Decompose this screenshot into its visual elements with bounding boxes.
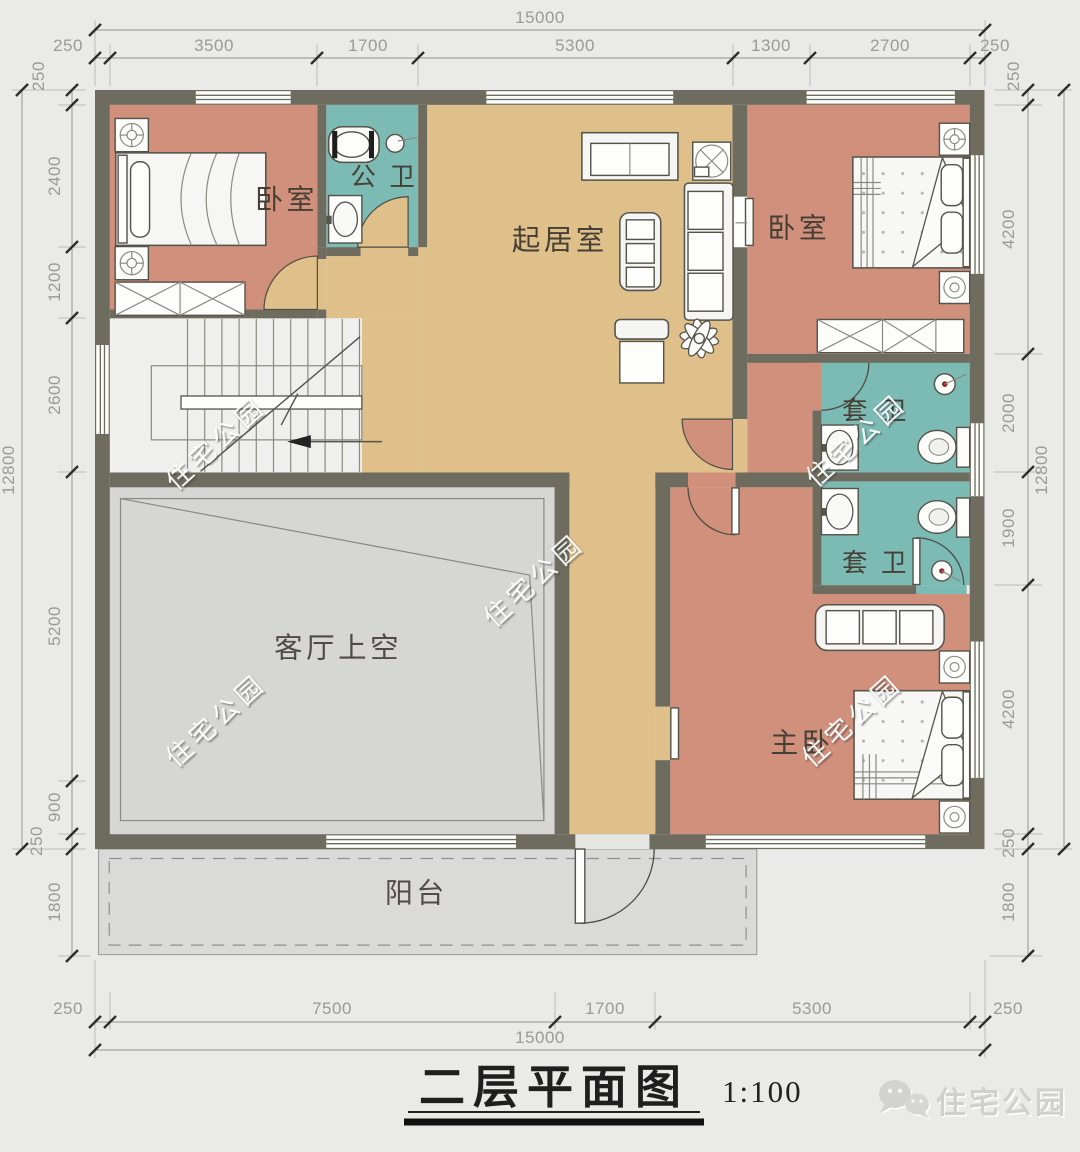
toilet — [957, 498, 970, 537]
faucet — [386, 134, 404, 152]
dim-right-4: 4200 — [999, 689, 1018, 729]
dim-right-1: 4200 — [999, 209, 1018, 249]
staircase — [110, 318, 382, 472]
pillow — [942, 697, 963, 738]
dim-left-6: 250 — [27, 826, 46, 856]
drawing-title: 二层平面图 — [419, 1062, 689, 1113]
label-living: 起居室 — [512, 225, 608, 257]
dim-left-1: 2400 — [45, 156, 64, 196]
dim-bot-3: 5300 — [792, 999, 832, 1018]
dim-left-4: 5200 — [45, 606, 64, 646]
label-void: 客厅上空 — [274, 633, 402, 665]
dim-bottom-total: 15000 — [515, 1028, 565, 1047]
bath-annex — [747, 354, 812, 473]
dim-top-1: 3500 — [194, 36, 234, 55]
dim-left-5: 900 — [45, 792, 64, 822]
floorplan-page: 卧室 公 卫 起居室 卧室 套 卫 套 卫 客厅上空 主卧 阳台 — [0, 0, 1080, 1152]
dim-right-0: 250 — [1004, 61, 1023, 91]
corridor — [569, 472, 655, 834]
dim-top-5: 2700 — [870, 36, 910, 55]
door-bedroom-ne-leaf — [746, 199, 754, 246]
dim-right-5: 250 — [999, 828, 1018, 858]
hall-strip — [362, 318, 418, 472]
dim-left-7: 1800 — [45, 882, 64, 922]
label-public-bath: 公 卫 — [350, 162, 418, 191]
dim-top-6: 250 — [980, 36, 1010, 55]
dim-top-4: 1300 — [751, 36, 791, 55]
drawing-scale: 1:100 — [722, 1074, 803, 1109]
dim-right-6: 1800 — [999, 882, 1018, 922]
pillow — [942, 745, 963, 786]
armchair — [615, 319, 668, 339]
dim-top-0: 250 — [53, 36, 83, 55]
pillow — [941, 212, 962, 253]
label-ensuite-lower: 套 卫 — [842, 549, 910, 578]
label-bedroom-nw: 卧室 — [255, 184, 318, 216]
floorplan-canvas: 卧室 公 卫 起居室 卧室 套 卫 套 卫 客厅上空 主卧 阳台 — [0, 0, 1080, 1152]
dim-top-total: 15000 — [515, 8, 565, 27]
dim-bot-1: 7500 — [312, 999, 352, 1018]
dim-right-total: 12800 — [1032, 445, 1051, 495]
dim-top-2: 1700 — [348, 36, 388, 55]
label-bedroom-ne: 卧室 — [767, 213, 830, 245]
dim-bot-2: 1700 — [585, 999, 625, 1018]
dim-top-3: 5300 — [555, 36, 595, 55]
dim-left-total: 12800 — [0, 445, 18, 495]
toilet — [957, 427, 970, 467]
hall-by-bath — [326, 247, 418, 318]
pillow — [941, 165, 962, 206]
room-master-west — [670, 487, 812, 834]
floor-plan: 卧室 公 卫 起居室 卧室 套 卫 套 卫 客厅上空 主卧 阳台 — [95, 90, 985, 955]
door-balcony-leaf — [575, 849, 584, 923]
door-master-leaf — [671, 708, 679, 759]
pillow — [131, 162, 150, 237]
dim-left-0: 250 — [29, 61, 48, 91]
dim-right-3: 1900 — [999, 508, 1018, 548]
dim-left-3: 2600 — [45, 375, 64, 415]
dim-bot-4: 250 — [993, 999, 1023, 1018]
brand-name: 住宅公园 — [936, 1086, 1068, 1120]
label-balcony: 阳台 — [385, 877, 448, 909]
stair-handrail — [181, 396, 362, 409]
dim-right-2: 2000 — [999, 393, 1018, 433]
dim-left-2: 1200 — [45, 262, 64, 302]
dim-bot-0: 250 — [53, 999, 83, 1018]
